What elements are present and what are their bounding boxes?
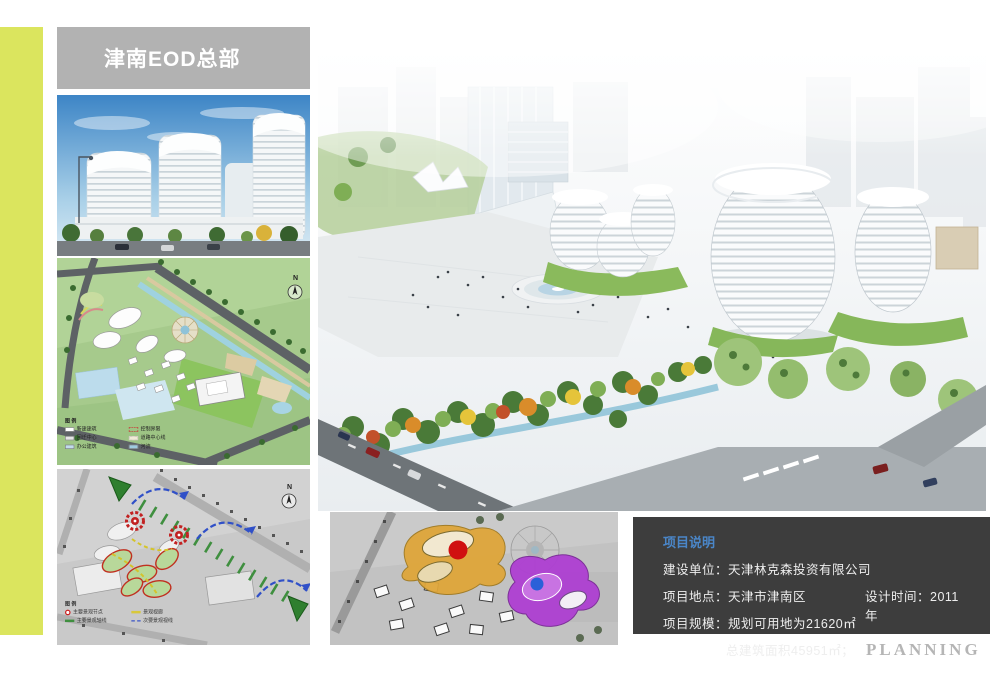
legend-item: 主要景观轴线 <box>65 618 123 624</box>
title-bar: 津南EOD总部 <box>57 27 310 89</box>
aerial-art <box>318 27 986 511</box>
swatch-road-centerline <box>129 436 138 440</box>
swatch-new-building <box>65 427 74 431</box>
accent-bar <box>0 27 43 635</box>
svg-text:N: N <box>287 484 292 491</box>
red-node <box>449 541 468 560</box>
swatch-office-building <box>65 444 74 448</box>
info-line-owner: 建设单位：天津林克森投资有限公司 <box>663 559 960 578</box>
legend-title: 图 例 <box>65 601 189 607</box>
street <box>57 241 310 256</box>
info-line-scale: 项目规模：规划可用地为21620㎡ <box>663 613 960 632</box>
analysis-legend: 图 例 主要景观节点 景观视廊 主要景观轴线 次要景观视线 <box>65 601 189 624</box>
swatch-control-line <box>129 427 138 431</box>
legend-item: 办公建筑 <box>65 443 120 449</box>
swatch-relocation-center <box>65 436 74 440</box>
legend-item: 新建建筑 <box>65 426 120 432</box>
main-aerial-rendering <box>318 27 986 511</box>
planning-watermark: PLANNING <box>866 640 981 660</box>
legend-item: 景观视廊 <box>131 609 189 615</box>
legend-item: 道路中心线 <box>129 435 189 441</box>
project-info-box: 项目说明 建设单位：天津林克森投资有限公司 项目地点：天津市津南区 设计时间：2… <box>633 517 990 634</box>
function-diagram-art <box>330 512 618 645</box>
swatch-view-corridor <box>131 611 140 613</box>
master-plan-panel: N 图 例 新建建筑 控制界限 回迁中心 道路中心线 办公建筑 河流 <box>57 258 310 465</box>
legend-item: 控制界限 <box>129 426 189 432</box>
location-text: 项目地点：天津市津南区 <box>663 590 806 604</box>
building-rendering-photo <box>57 95 310 256</box>
legend-item: 回迁中心 <box>65 435 120 441</box>
legend-title: 图 例 <box>65 418 189 424</box>
swatch-landscape-node <box>65 609 71 615</box>
legend-item: 次要景观视线 <box>131 618 189 624</box>
master-plan-legend: 图 例 新建建筑 控制界限 回迁中心 道路中心线 办公建筑 河流 <box>65 418 189 450</box>
presentation-board: 津南EOD总部 <box>0 0 999 678</box>
analysis-plan-panel: N 图 例 主要景观节点 景观视廊 主要景观轴线 次要景观视线 <box>57 469 310 645</box>
swatch-river <box>129 444 138 448</box>
legend-item: 主要景观节点 <box>65 609 123 615</box>
swatch-landscape-axis <box>65 620 74 622</box>
function-diagram-panel <box>330 512 618 645</box>
circular-plaza <box>172 317 198 343</box>
swatch-sight-line <box>131 620 140 621</box>
info-title: 项目说明 <box>663 532 960 551</box>
svg-text:N: N <box>293 275 298 282</box>
page-title: 津南EOD总部 <box>57 43 241 73</box>
photo-art <box>57 95 310 256</box>
info-line-location: 项目地点：天津市津南区 设计时间：2011年 <box>663 586 960 605</box>
blue-node <box>531 578 544 591</box>
legend-item: 河流 <box>129 443 189 449</box>
